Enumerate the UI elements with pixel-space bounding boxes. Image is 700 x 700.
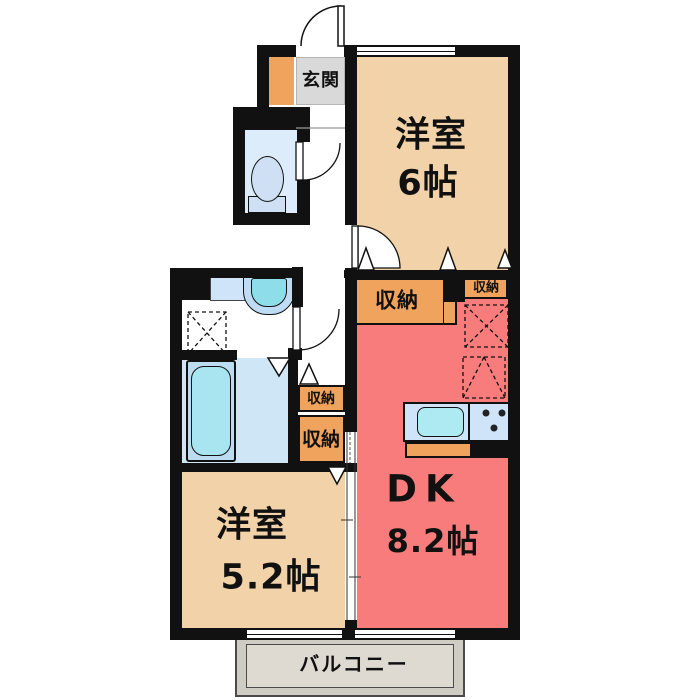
entrance-label: 玄関 — [302, 72, 340, 90]
wall — [445, 270, 465, 302]
closet-folding-door-icon — [300, 364, 318, 384]
room-western-6-title: 洋室 — [395, 119, 467, 154]
wall — [170, 268, 182, 640]
toilet-bowl — [251, 156, 284, 202]
storage-top-large-label: 収納 — [375, 291, 419, 312]
wall — [345, 268, 357, 420]
shoe-cabinet — [269, 55, 294, 105]
room-western-52-size: 5.2帖 — [220, 561, 321, 596]
storage-top-large-ext — [444, 302, 457, 325]
wall — [297, 180, 310, 225]
kitchen-counter-edge — [405, 442, 472, 458]
balcony-label: バルコニー — [299, 654, 409, 674]
wall — [233, 107, 310, 130]
washroom-door — [293, 307, 339, 350]
window-top — [357, 45, 455, 57]
wall — [297, 130, 310, 142]
entrance-door — [301, 6, 344, 46]
wall — [455, 628, 520, 640]
window-bottom-right — [355, 628, 455, 640]
storage-mid-lower-label: 収納 — [302, 431, 340, 450]
wall — [342, 628, 355, 640]
floor-plan: 玄関 洋室 6帖 収納 収納 収納 収納 DK 8.2帖 洋室 5.2帖 バルコ… — [0, 0, 700, 700]
wall — [288, 358, 298, 472]
wall — [233, 130, 245, 225]
kitchen-sink — [417, 407, 464, 437]
wall — [170, 628, 247, 640]
room-dk-title: DK — [386, 471, 461, 508]
wall — [472, 442, 510, 458]
room-dk-size: 8.2帖 — [387, 525, 480, 557]
wall — [465, 270, 510, 278]
wall — [345, 57, 357, 225]
wall — [170, 463, 357, 472]
washbasin-sink — [251, 278, 287, 307]
storage-top-small-label: 収納 — [473, 282, 499, 295]
wall — [508, 45, 520, 640]
room-western-52-title: 洋室 — [216, 509, 288, 544]
wall — [344, 45, 357, 57]
wall — [178, 350, 237, 360]
toilet-door — [296, 142, 340, 180]
kitchen-counter-divider — [468, 402, 470, 442]
washing-machine-space — [188, 312, 226, 354]
wall — [345, 620, 357, 628]
wall — [178, 268, 210, 300]
room-western-52-floor — [182, 472, 345, 628]
window-bottom-left — [247, 628, 342, 640]
wall — [344, 270, 457, 278]
storage-mid-upper-label: 収納 — [307, 392, 335, 406]
bathtub — [191, 366, 231, 456]
room-western-6-size: 6帖 — [397, 167, 458, 202]
wall — [345, 420, 357, 432]
